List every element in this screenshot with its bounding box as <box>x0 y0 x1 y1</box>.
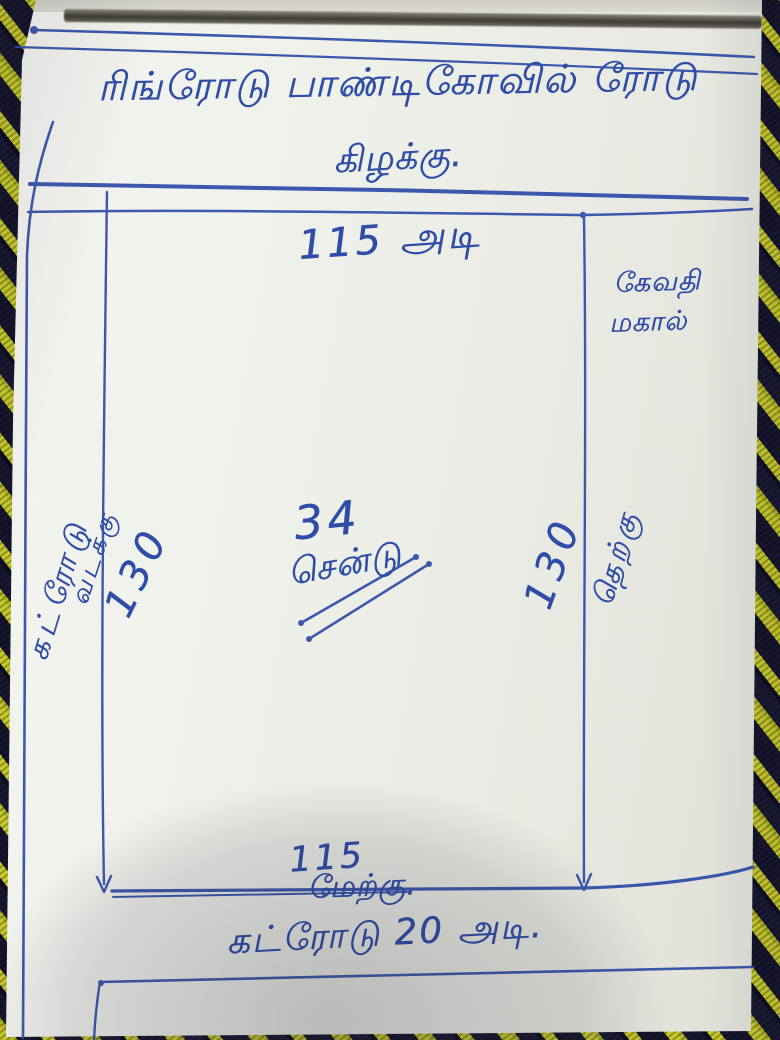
title-road-name: ரிங்ரோடு பாண்டிகோவில் ரோடு <box>97 55 699 115</box>
neighbor-building-name-line2: மகால் <box>608 301 688 343</box>
direction-west-label: மேற்கு. <box>307 866 418 910</box>
neighbor-building-name-line1: கேவதி <box>613 261 702 303</box>
area-value: 34 <box>291 490 363 551</box>
direction-east-label: கிழக்கு. <box>332 134 464 187</box>
